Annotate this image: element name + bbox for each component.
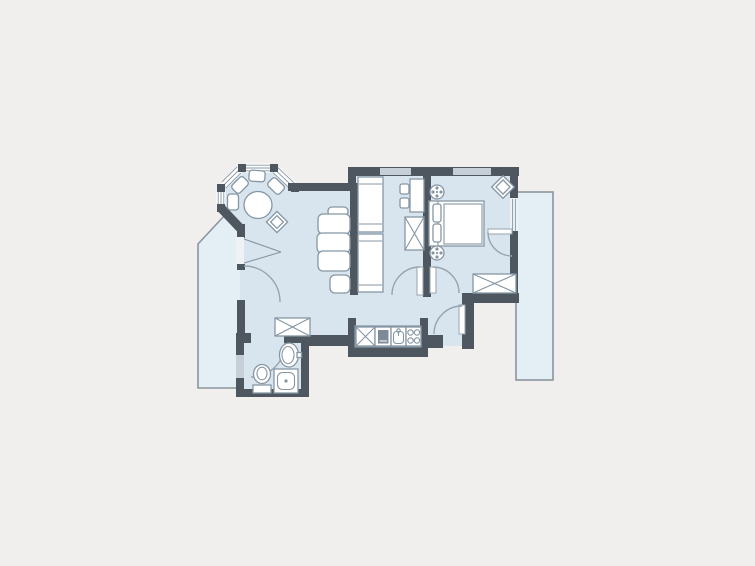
casement-window: [236, 237, 244, 264]
toilet-icon: [253, 365, 271, 394]
bay-post: [238, 164, 246, 172]
shower-icon: [274, 369, 298, 393]
bathroom-west-wall-upper: [236, 343, 244, 355]
pillow: [433, 204, 441, 222]
bedroom-balcony-door-glazing: [510, 198, 518, 233]
desk: [410, 179, 424, 212]
bathroom-north-stub: [236, 333, 251, 343]
dining-chair: [228, 194, 239, 210]
sofa-cushion: [318, 251, 350, 271]
north-wall: [350, 167, 519, 176]
west-wall-mid: [237, 264, 245, 270]
sink-icon: [391, 327, 406, 346]
bay-post: [217, 184, 225, 192]
sofa-cushion: [317, 233, 350, 253]
balcony-right: [516, 192, 553, 380]
bathroom-east-wall: [301, 333, 309, 397]
balcony-left: [198, 215, 241, 388]
cabinet-x-box-kitchen: [356, 327, 375, 346]
stool: [400, 198, 409, 208]
window-north-1: [380, 168, 411, 175]
bay-post: [270, 164, 278, 172]
bedside-lamp-icon: [430, 246, 444, 260]
pillow: [433, 224, 441, 242]
bedroom-balcony-door-leaf: [488, 229, 512, 234]
bedroom-door-leaf: [430, 267, 436, 293]
kitchenette: [355, 326, 421, 347]
ottoman: [330, 275, 350, 293]
living-dressing-wall: [350, 183, 358, 295]
west-wall-stub: [237, 224, 245, 238]
closet-x-box-dressing: [405, 217, 424, 250]
tall-cabinet-lower: [358, 234, 383, 292]
west-wall-lower: [237, 300, 245, 335]
closet-x-box-bedroom: [473, 274, 516, 293]
oven-icon: [375, 327, 391, 346]
living-north-wall: [288, 183, 352, 191]
stool: [400, 184, 409, 194]
entrance-door-leaf: [459, 305, 465, 334]
dining-chair: [249, 170, 266, 182]
sofa-cushion: [318, 214, 350, 234]
floor-plan-canvas: [0, 0, 755, 566]
window-north-2: [453, 168, 491, 175]
dressing-door-leaf: [417, 267, 423, 295]
floor-plan: [0, 0, 755, 566]
wardrobe-x-box-living: [275, 318, 310, 336]
bathroom-window: [236, 355, 244, 378]
bedside-lamp-icon: [430, 185, 444, 199]
stove-four-burner-icon: [406, 327, 421, 346]
south-wall-right: [428, 335, 443, 348]
round-dining-table: [244, 192, 272, 219]
